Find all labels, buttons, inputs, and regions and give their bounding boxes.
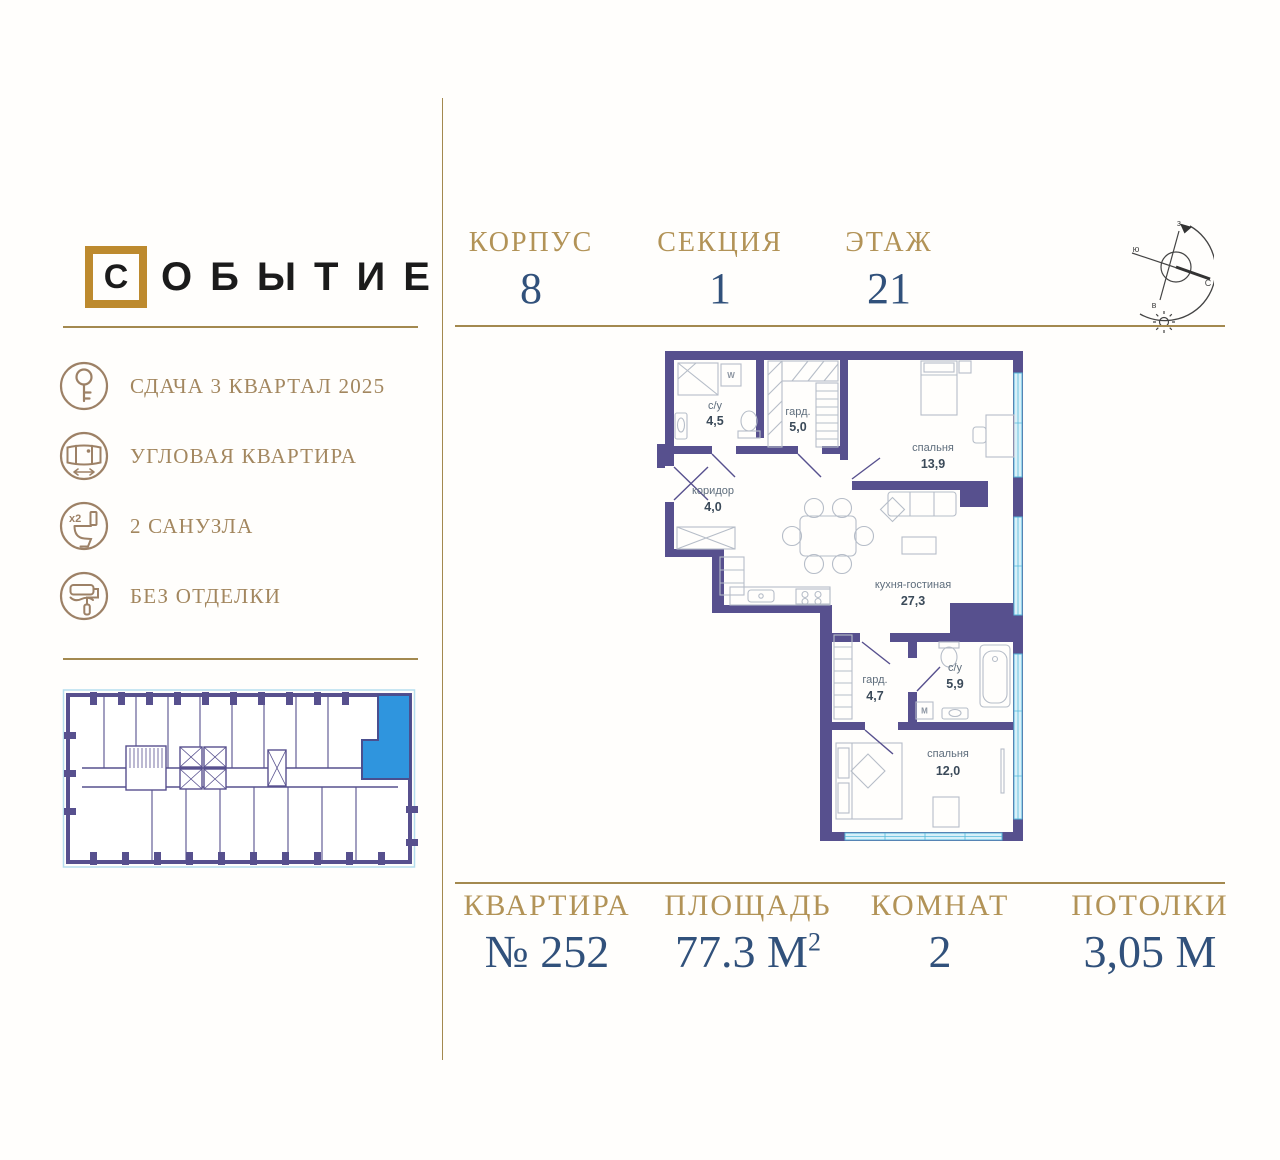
stat-value: 1 bbox=[657, 263, 783, 314]
stat-area: ПЛОЩАДЬ 77.3 М2 bbox=[664, 889, 831, 978]
room-area: 4,7 bbox=[866, 689, 883, 703]
stat-value: 3,05 М bbox=[1071, 925, 1228, 978]
stat-value: 8 bbox=[469, 263, 594, 314]
room-name: коридор bbox=[692, 485, 734, 497]
room-area: 5,0 bbox=[789, 420, 806, 434]
column-divider bbox=[442, 98, 443, 1060]
square-superscript: 2 bbox=[808, 928, 821, 957]
room-area: 12,0 bbox=[936, 764, 960, 778]
stat-label: СЕКЦИЯ bbox=[657, 227, 783, 259]
sink bbox=[675, 413, 687, 439]
sofa bbox=[880, 492, 956, 554]
room-area: 13,9 bbox=[921, 457, 945, 471]
toilet-x2-icon: x2 bbox=[58, 500, 110, 552]
bed-2 bbox=[836, 743, 902, 819]
stat-label: КОРПУС bbox=[469, 227, 594, 259]
divider bbox=[455, 882, 1225, 884]
compass-north-label: С bbox=[1205, 278, 1212, 288]
shower bbox=[678, 363, 718, 395]
logo-first-letter: С bbox=[104, 258, 129, 297]
compass-arrowhead bbox=[1180, 224, 1192, 234]
compass-south-label: ю bbox=[1133, 244, 1140, 254]
coffee-table bbox=[902, 537, 936, 554]
feature-label: СДАЧА 3 КВАРТАЛ 2025 bbox=[130, 374, 385, 399]
stat-sekcia: СЕКЦИЯ 1 bbox=[657, 227, 783, 314]
apartment-floor-plan: с/у 4,5 гард. 5,0 спальня 13,9 коридор 4… bbox=[650, 351, 1030, 878]
room-area: 4,5 bbox=[706, 414, 723, 428]
floor-overview-plan bbox=[62, 684, 420, 874]
feature-label: БЕЗ ОТДЕЛКИ bbox=[130, 584, 281, 609]
building-outline bbox=[68, 695, 410, 862]
apartment-card-page: С ОБЫТИЕ СДАЧА 3 КВАРТАЛ 2025 bbox=[0, 0, 1280, 1160]
kitchen-counter bbox=[730, 587, 830, 605]
stat-value: 21 bbox=[845, 263, 933, 314]
room-name: спальня bbox=[927, 748, 969, 760]
compass-east-label: в bbox=[1152, 300, 1157, 310]
room-name: кухня-гостиная bbox=[875, 579, 951, 591]
developer-logo: С ОБЫТИЕ bbox=[85, 246, 448, 308]
divider bbox=[455, 325, 1225, 327]
panorama-window-icon bbox=[58, 430, 110, 482]
feature-bathrooms: x2 2 САНУЗЛА bbox=[58, 500, 428, 552]
key-icon bbox=[58, 360, 110, 412]
stat-label: КВАРТИРА bbox=[463, 889, 630, 923]
stat-value: 77.3 М2 bbox=[664, 925, 831, 978]
wardrobe-2 bbox=[834, 635, 852, 719]
hall-closet bbox=[677, 527, 735, 549]
stat-label: КОМНАТ bbox=[871, 889, 1010, 923]
room-name: гард. bbox=[862, 674, 887, 686]
stat-label: ПОТОЛКИ bbox=[1071, 889, 1228, 923]
washer-label: M bbox=[921, 707, 928, 716]
stat-label: ПЛОЩАДЬ bbox=[664, 889, 831, 923]
room-area: 5,9 bbox=[946, 677, 963, 691]
logo-box: С bbox=[85, 246, 147, 308]
divider bbox=[63, 326, 418, 328]
compass-icon: з ю С в bbox=[1104, 200, 1214, 350]
room-name: с/у bbox=[948, 662, 963, 674]
divider bbox=[63, 658, 418, 660]
room-area: 27,3 bbox=[901, 594, 925, 608]
dining-table bbox=[783, 499, 874, 574]
sink-2 bbox=[942, 708, 968, 719]
feature-label: 2 САНУЗЛА bbox=[130, 514, 253, 539]
radiator bbox=[1001, 749, 1004, 793]
stat-value: 2 bbox=[871, 925, 1010, 978]
stat-rooms: КОМНАТ 2 bbox=[871, 889, 1010, 978]
feature-list: СДАЧА 3 КВАРТАЛ 2025 УГЛОВАЯ КВАРТИРА bbox=[58, 360, 428, 640]
feature-finishing: БЕЗ ОТДЕЛКИ bbox=[58, 570, 428, 622]
stat-apartment-number: КВАРТИРА № 252 bbox=[463, 889, 630, 978]
room-area: 4,0 bbox=[704, 500, 721, 514]
bed bbox=[921, 361, 971, 415]
desk bbox=[973, 415, 1014, 457]
desk-2 bbox=[933, 797, 959, 827]
wardrobe-shelving bbox=[768, 361, 838, 447]
compass-west-label: з bbox=[1177, 218, 1181, 228]
stat-korpus: КОРПУС 8 bbox=[469, 227, 594, 314]
feature-corner: УГЛОВАЯ КВАРТИРА bbox=[58, 430, 428, 482]
x2-badge: x2 bbox=[69, 513, 81, 525]
room-name: спальня bbox=[912, 442, 954, 454]
stat-etazh: ЭТАЖ 21 bbox=[845, 227, 933, 314]
stat-value: № 252 bbox=[463, 925, 630, 978]
feature-completion: СДАЧА 3 КВАРТАЛ 2025 bbox=[58, 360, 428, 412]
bathtub bbox=[980, 645, 1010, 707]
sun-icon bbox=[1153, 311, 1175, 333]
washer-label: W bbox=[727, 371, 735, 380]
room-name: с/у bbox=[708, 400, 723, 412]
paint-roller-icon bbox=[58, 570, 110, 622]
stat-ceilings: ПОТОЛКИ 3,05 М bbox=[1071, 889, 1228, 978]
room-name: гард. bbox=[785, 406, 810, 418]
logo-text: ОБЫТИЕ bbox=[161, 257, 448, 297]
stat-label: ЭТАЖ bbox=[845, 227, 933, 259]
feature-label: УГЛОВАЯ КВАРТИРА bbox=[130, 444, 357, 469]
